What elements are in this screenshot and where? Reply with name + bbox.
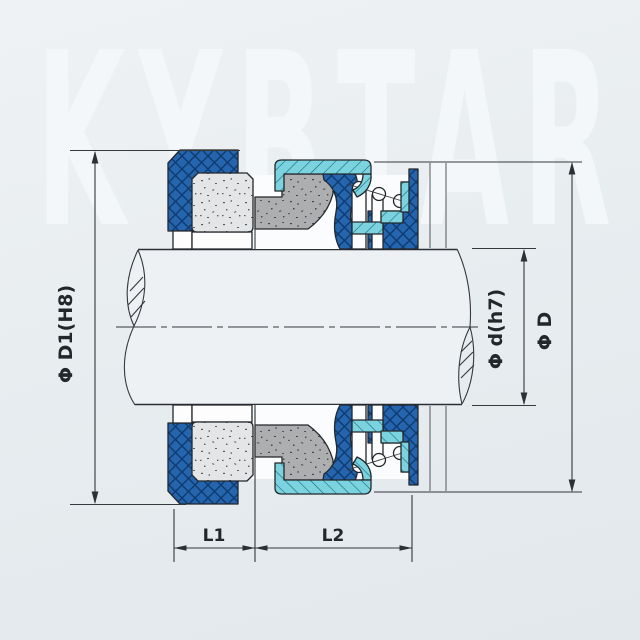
boot-sleeve xyxy=(173,231,192,249)
seat-sleeve xyxy=(192,232,252,249)
l1-label: L1 xyxy=(203,526,226,546)
outer-D-label: Φ D xyxy=(534,312,556,351)
shaft-d-label: Φ d(h7) xyxy=(485,289,507,369)
lower-seal-assembly xyxy=(168,405,446,504)
spring-coil-band-1 xyxy=(352,189,366,249)
l2-label: L2 xyxy=(322,526,345,546)
stationary-seat-ring xyxy=(192,173,253,232)
d1-label: Φ D1(H8) xyxy=(55,285,77,383)
technical-drawing-page: KYBTAR xyxy=(0,0,640,640)
mechanical-seal-diagram: KYBTAR xyxy=(0,0,640,640)
